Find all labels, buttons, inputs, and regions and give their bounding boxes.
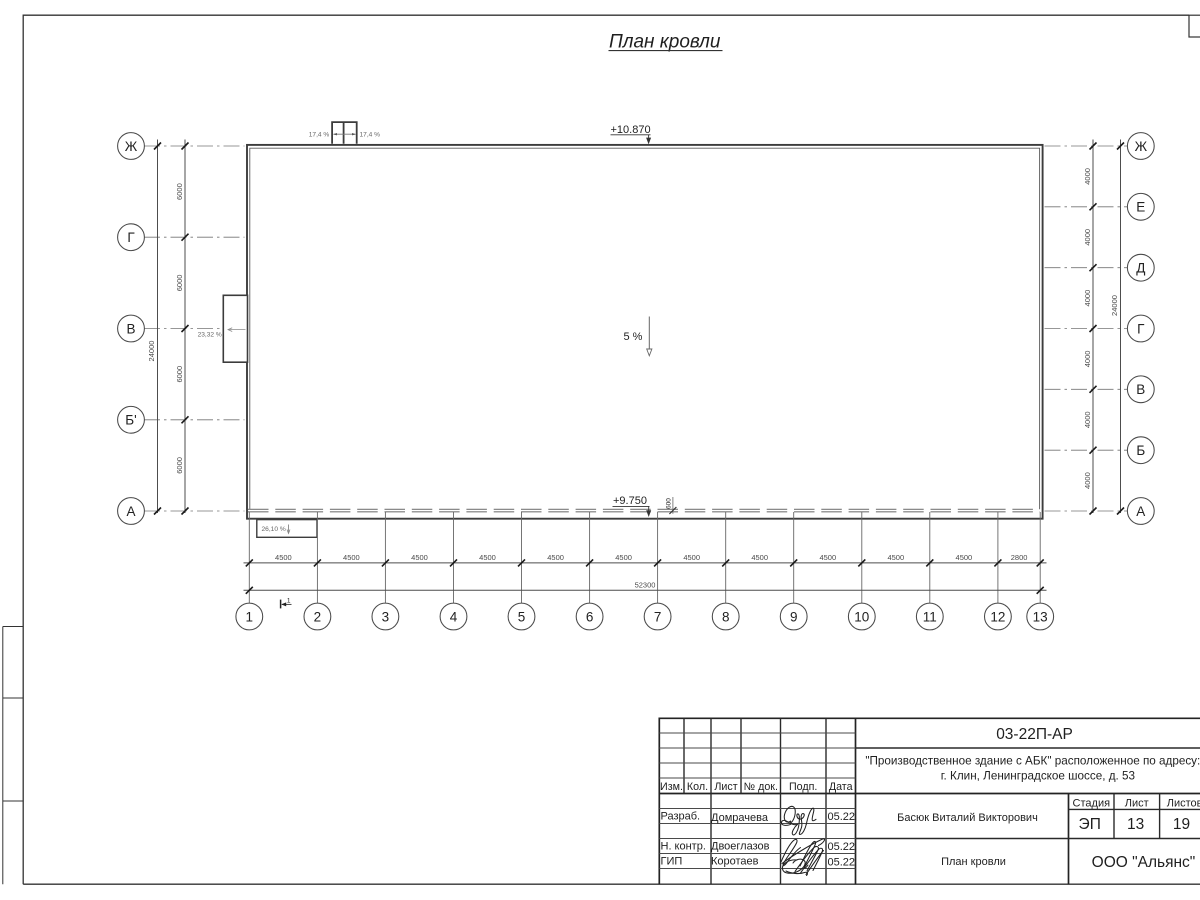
- svg-text:Ж: Ж: [125, 139, 138, 154]
- svg-text:Изм.: Изм.: [660, 781, 683, 793]
- svg-text:4500: 4500: [479, 553, 496, 562]
- svg-text:600: 600: [666, 498, 673, 509]
- svg-text:19: 19: [1173, 816, 1190, 833]
- svg-text:г. Клин, Ленинградское шоссе,: г. Клин, Ленинградское шоссе, д. 53: [941, 769, 1135, 782]
- svg-text:1: 1: [287, 598, 291, 605]
- svg-text:17,4 %: 17,4 %: [309, 132, 330, 139]
- svg-text:4500: 4500: [343, 553, 360, 562]
- svg-text:4000: 4000: [1083, 168, 1092, 185]
- svg-text:А: А: [1136, 504, 1145, 519]
- svg-text:05.22: 05.22: [828, 856, 856, 868]
- svg-text:6000: 6000: [175, 275, 184, 292]
- svg-text:Подп.: Подп.: [789, 781, 817, 793]
- svg-text:4500: 4500: [683, 553, 700, 562]
- svg-text:Разраб.: Разраб.: [661, 811, 701, 823]
- svg-text:Ж: Ж: [1135, 139, 1148, 154]
- svg-text:Е: Е: [1136, 200, 1145, 215]
- svg-text:Дата: Дата: [829, 781, 853, 793]
- svg-text:12: 12: [990, 609, 1005, 624]
- svg-text:6: 6: [586, 609, 594, 624]
- svg-text:6000: 6000: [175, 183, 184, 200]
- svg-text:Двоеглазов: Двоеглазов: [711, 841, 770, 853]
- svg-text:26,10 %: 26,10 %: [262, 526, 286, 533]
- svg-text:Домрачева: Домрачева: [711, 812, 769, 824]
- svg-text:№ док.: № док.: [744, 781, 778, 793]
- svg-text:4500: 4500: [411, 553, 428, 562]
- svg-text:05.22: 05.22: [828, 811, 856, 823]
- svg-text:2800: 2800: [1011, 553, 1028, 562]
- svg-text:Коротаев: Коротаев: [711, 855, 759, 867]
- svg-text:+9.750: +9.750: [613, 495, 647, 507]
- svg-text:13: 13: [1033, 609, 1048, 624]
- svg-text:Б: Б: [1136, 443, 1145, 458]
- svg-text:9: 9: [790, 609, 798, 624]
- svg-text:24000: 24000: [147, 341, 156, 362]
- svg-text:7: 7: [654, 609, 662, 624]
- svg-text:05.22: 05.22: [828, 841, 856, 853]
- svg-text:4000: 4000: [1083, 472, 1092, 489]
- svg-text:ООО "Альянс": ООО "Альянс": [1092, 854, 1196, 871]
- svg-text:1: 1: [246, 609, 254, 624]
- svg-text:6000: 6000: [175, 366, 184, 383]
- svg-text:Кол.: Кол.: [687, 781, 708, 793]
- svg-text:4000: 4000: [1083, 351, 1092, 368]
- svg-text:В: В: [126, 321, 135, 336]
- svg-text:План кровли: План кровли: [941, 856, 1006, 868]
- svg-text:Басюк Виталий Викторович: Басюк Виталий Викторович: [897, 812, 1038, 824]
- svg-text:"Производственное здание с АБК: "Производственное здание с АБК" располож…: [865, 754, 1200, 767]
- svg-text:4500: 4500: [275, 553, 292, 562]
- svg-text:План кровли: План кровли: [609, 31, 721, 52]
- svg-text:52300: 52300: [635, 581, 656, 590]
- svg-text:13: 13: [1127, 816, 1144, 833]
- svg-text:5: 5: [518, 609, 526, 624]
- svg-text:4500: 4500: [615, 553, 632, 562]
- svg-text:Лист: Лист: [1125, 797, 1149, 809]
- svg-text:11: 11: [923, 609, 937, 624]
- svg-text:4: 4: [450, 609, 458, 624]
- svg-text:4500: 4500: [547, 553, 564, 562]
- svg-text:Г: Г: [1137, 321, 1145, 336]
- svg-text:4000: 4000: [1083, 290, 1092, 307]
- svg-text:10: 10: [854, 609, 869, 624]
- svg-text:ЭП: ЭП: [1079, 816, 1101, 833]
- svg-text:4500: 4500: [819, 553, 836, 562]
- svg-text:А: А: [126, 504, 135, 519]
- svg-text:В: В: [1136, 382, 1145, 397]
- svg-text:23,32 %: 23,32 %: [198, 331, 222, 338]
- svg-text:03-22П-АР: 03-22П-АР: [996, 726, 1073, 743]
- svg-text:Листов: Листов: [1167, 797, 1200, 809]
- svg-text:Б': Б': [125, 413, 136, 428]
- svg-text:4500: 4500: [887, 553, 904, 562]
- svg-text:Г: Г: [127, 230, 135, 245]
- svg-text:24000: 24000: [1110, 295, 1119, 316]
- svg-text:3: 3: [382, 609, 390, 624]
- svg-text:Стадия: Стадия: [1073, 797, 1111, 809]
- svg-text:5 %: 5 %: [624, 331, 643, 343]
- svg-text:6000: 6000: [175, 457, 184, 474]
- svg-text:Д: Д: [1136, 261, 1145, 276]
- svg-text:4000: 4000: [1083, 229, 1092, 246]
- svg-text:ГИП: ГИП: [661, 855, 683, 867]
- svg-text:8: 8: [722, 609, 730, 624]
- svg-text:Н. контр.: Н. контр.: [661, 841, 706, 853]
- svg-text:4000: 4000: [1083, 411, 1092, 428]
- svg-text:17,4 %: 17,4 %: [360, 132, 381, 139]
- svg-text:Лист: Лист: [714, 781, 737, 793]
- svg-text:4500: 4500: [751, 553, 768, 562]
- svg-text:2: 2: [314, 609, 322, 624]
- svg-text:4500: 4500: [956, 553, 973, 562]
